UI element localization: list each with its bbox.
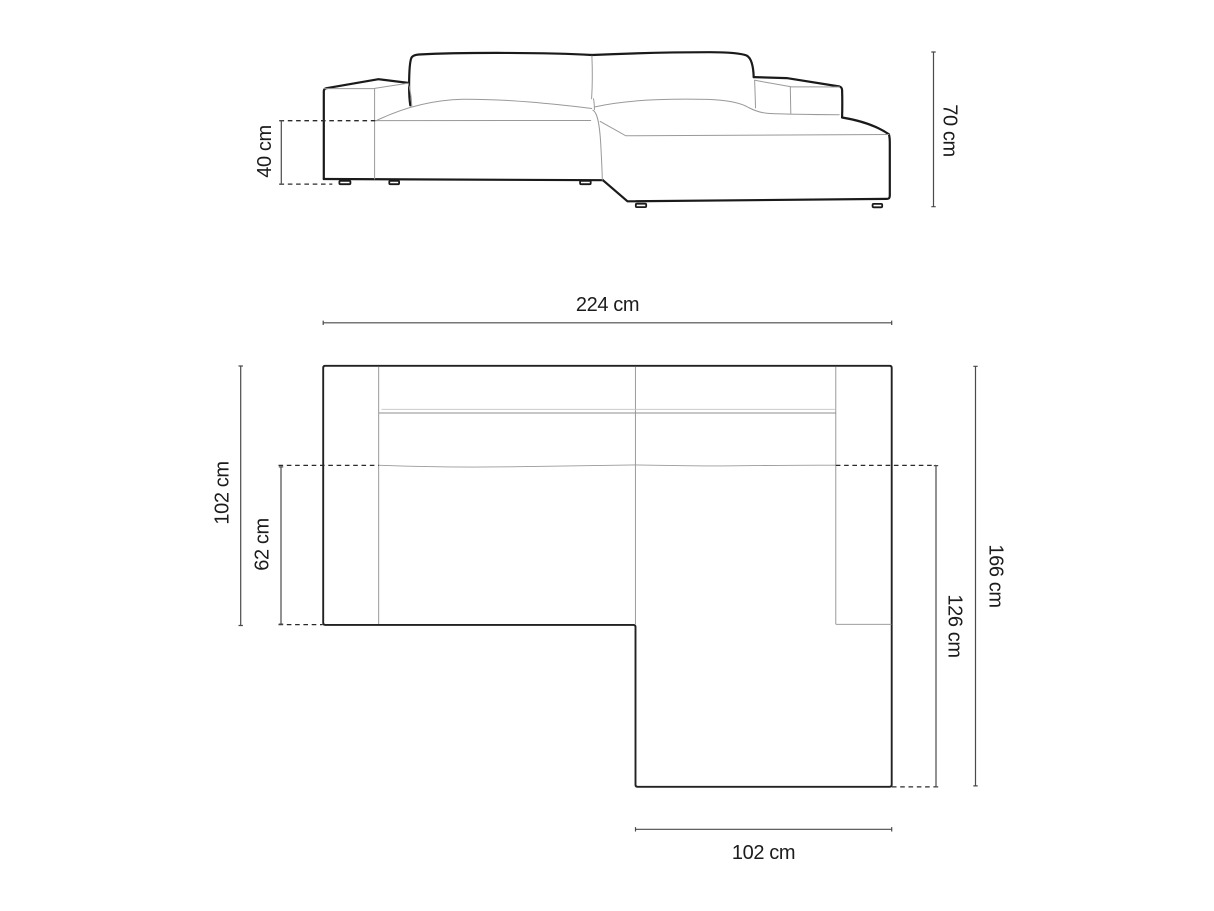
svg-text:102 cm: 102 cm xyxy=(212,461,234,524)
svg-text:224 cm: 224 cm xyxy=(576,294,639,316)
svg-text:126 cm: 126 cm xyxy=(944,594,966,657)
svg-text:102 cm: 102 cm xyxy=(732,842,795,864)
svg-text:40 cm: 40 cm xyxy=(254,125,276,177)
svg-text:70 cm: 70 cm xyxy=(939,104,961,156)
svg-text:62 cm: 62 cm xyxy=(252,518,274,570)
svg-text:166 cm: 166 cm xyxy=(985,544,1007,607)
